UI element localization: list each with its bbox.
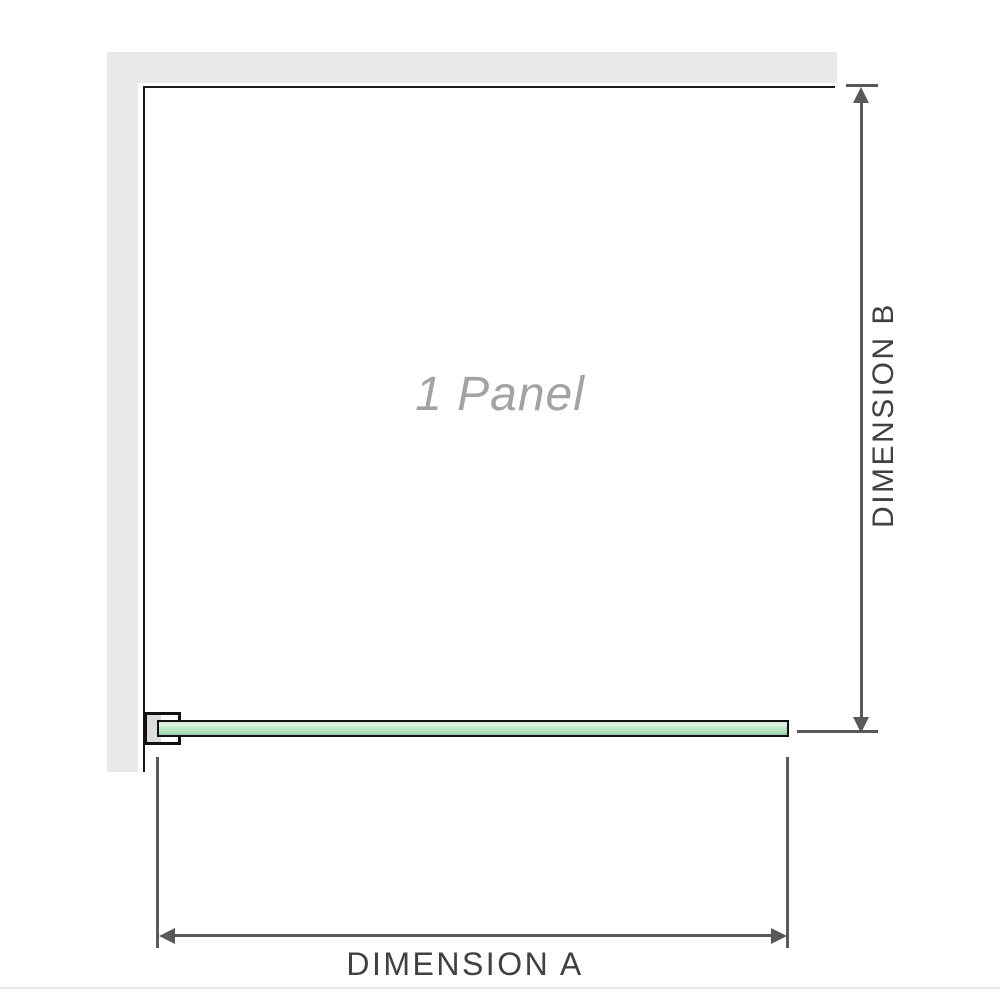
dimension-a-arrow-line (174, 934, 771, 937)
dimension-a-arrowhead-right-icon (771, 928, 787, 944)
dimension-diagram: 1 Panel DIMENSION B DIMENSION A (0, 0, 1000, 1000)
dimension-b-arrowhead-down-icon (853, 717, 869, 733)
bottom-divider-line (0, 987, 1000, 989)
panel-outline-top-border (143, 86, 835, 88)
panel-count-label: 1 Panel (300, 365, 700, 425)
dimension-a-extension-line-right (786, 757, 789, 948)
dimension-a-extension-line-left (156, 757, 159, 948)
dimension-a-arrowhead-left-icon (159, 928, 175, 944)
glass-panel-bar (157, 720, 789, 737)
dimension-b-label: DIMENSION B (867, 255, 901, 575)
wall-left-strip (107, 52, 138, 772)
panel-outline-left-border (143, 86, 145, 772)
dimension-a-label: DIMENSION A (265, 944, 665, 984)
dimension-b-arrow-line (860, 100, 863, 719)
dimension-b-arrowhead-up-icon (853, 87, 869, 103)
wall-top-strip (107, 52, 837, 83)
